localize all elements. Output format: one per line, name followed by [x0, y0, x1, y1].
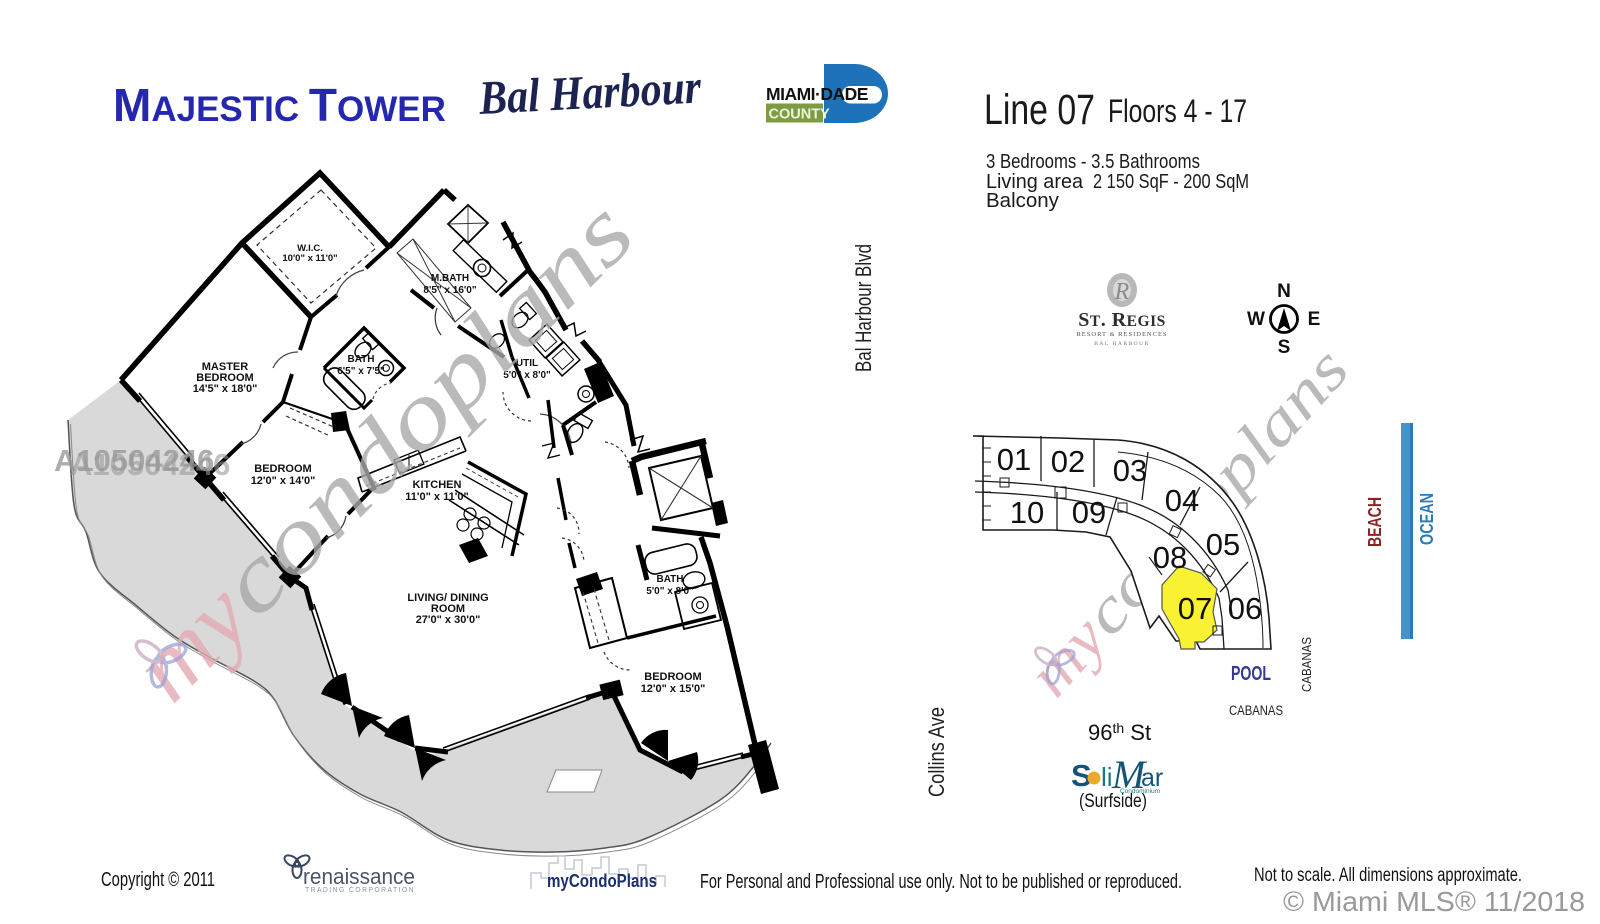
svg-text:5'0" x 8'0": 5'0" x 8'0" [646, 586, 694, 597]
svg-text:07: 07 [1178, 591, 1212, 626]
svg-text:R: R [1114, 279, 1130, 305]
svg-text:Bal Harbour Blvd: Bal Harbour Blvd [851, 244, 876, 372]
svg-text:Collins Ave: Collins Ave [924, 707, 949, 797]
svg-text:For Personal and Professional: For Personal and Professional use only. … [700, 871, 1182, 893]
svg-text:CABANAS: CABANAS [1299, 637, 1314, 692]
svg-text:BEDROOM: BEDROOM [644, 671, 701, 683]
svg-text:09: 09 [1072, 495, 1106, 530]
svg-text:Copyright © 2011: Copyright © 2011 [101, 869, 215, 891]
svg-text:E: E [1308, 309, 1321, 330]
svg-text:TRADING CORPORATION: TRADING CORPORATION [305, 887, 415, 894]
svg-text:BEACH: BEACH [1365, 497, 1385, 547]
svg-text:10: 10 [1010, 495, 1044, 530]
svg-text:A10504246: A10504246 [70, 447, 230, 482]
svg-text:02: 02 [1051, 444, 1085, 479]
svg-text:N: N [1277, 281, 1291, 302]
svg-text:(Surfside): (Surfside) [1079, 790, 1147, 812]
svg-text:W.I.C.: W.I.C. [297, 243, 323, 254]
svg-text:06: 06 [1228, 591, 1262, 626]
svg-text:12'0" x 15'0": 12'0" x 15'0" [641, 683, 706, 695]
svg-text:OCEAN: OCEAN [1417, 493, 1437, 545]
svg-text:© Miami MLS® 11/2018: © Miami MLS® 11/2018 [1283, 886, 1585, 917]
svg-text:M.BATH: M.BATH [431, 273, 469, 284]
svg-text:renaissance: renaissance [303, 864, 415, 889]
svg-text:MIAMI·DADE: MIAMI·DADE [766, 84, 868, 104]
svg-text:POOL: POOL [1231, 663, 1271, 685]
svg-text:COUNTY: COUNTY [769, 107, 831, 123]
svg-text:BATH: BATH [656, 574, 683, 585]
svg-text:04: 04 [1165, 483, 1199, 518]
svg-text:BATH: BATH [347, 354, 374, 365]
svg-text:14'5" x 18'0": 14'5" x 18'0" [193, 383, 258, 395]
svg-text:myCondoPlans: myCondoPlans [547, 871, 657, 891]
svg-text:08: 08 [1153, 540, 1187, 575]
svg-text:W: W [1247, 309, 1265, 330]
svg-text:S: S [1278, 337, 1291, 358]
svg-text:03: 03 [1113, 453, 1147, 488]
svg-text:27'0" x 30'0": 27'0" x 30'0" [416, 614, 481, 626]
svg-text:01: 01 [997, 442, 1031, 477]
svg-text:Line 07: Line 07 [984, 86, 1095, 134]
svg-text:Floors 4 - 17: Floors 4 - 17 [1108, 93, 1247, 129]
svg-text:2 150 SqF - 200 SqM: 2 150 SqF - 200 SqM [1093, 170, 1249, 193]
svg-text:Not to scale. All dimensions: Not to scale. All dimensions approximate… [1254, 865, 1522, 886]
svg-text:05: 05 [1206, 527, 1240, 562]
svg-text:ST. REGIS: ST. REGIS [1078, 309, 1165, 331]
svg-text:10'0" x 11'0": 10'0" x 11'0" [282, 253, 337, 264]
svg-text:Balcony: Balcony [986, 189, 1060, 212]
svg-text:CABANAS: CABANAS [1229, 703, 1283, 718]
svg-text:BAL HARBOUR: BAL HARBOUR [1094, 341, 1150, 347]
svg-text:li: li [1101, 762, 1113, 792]
svg-text:RESORT & RESIDENCES: RESORT & RESIDENCES [1076, 331, 1167, 338]
svg-text:6'5" x 7'5": 6'5" x 7'5" [337, 366, 385, 377]
